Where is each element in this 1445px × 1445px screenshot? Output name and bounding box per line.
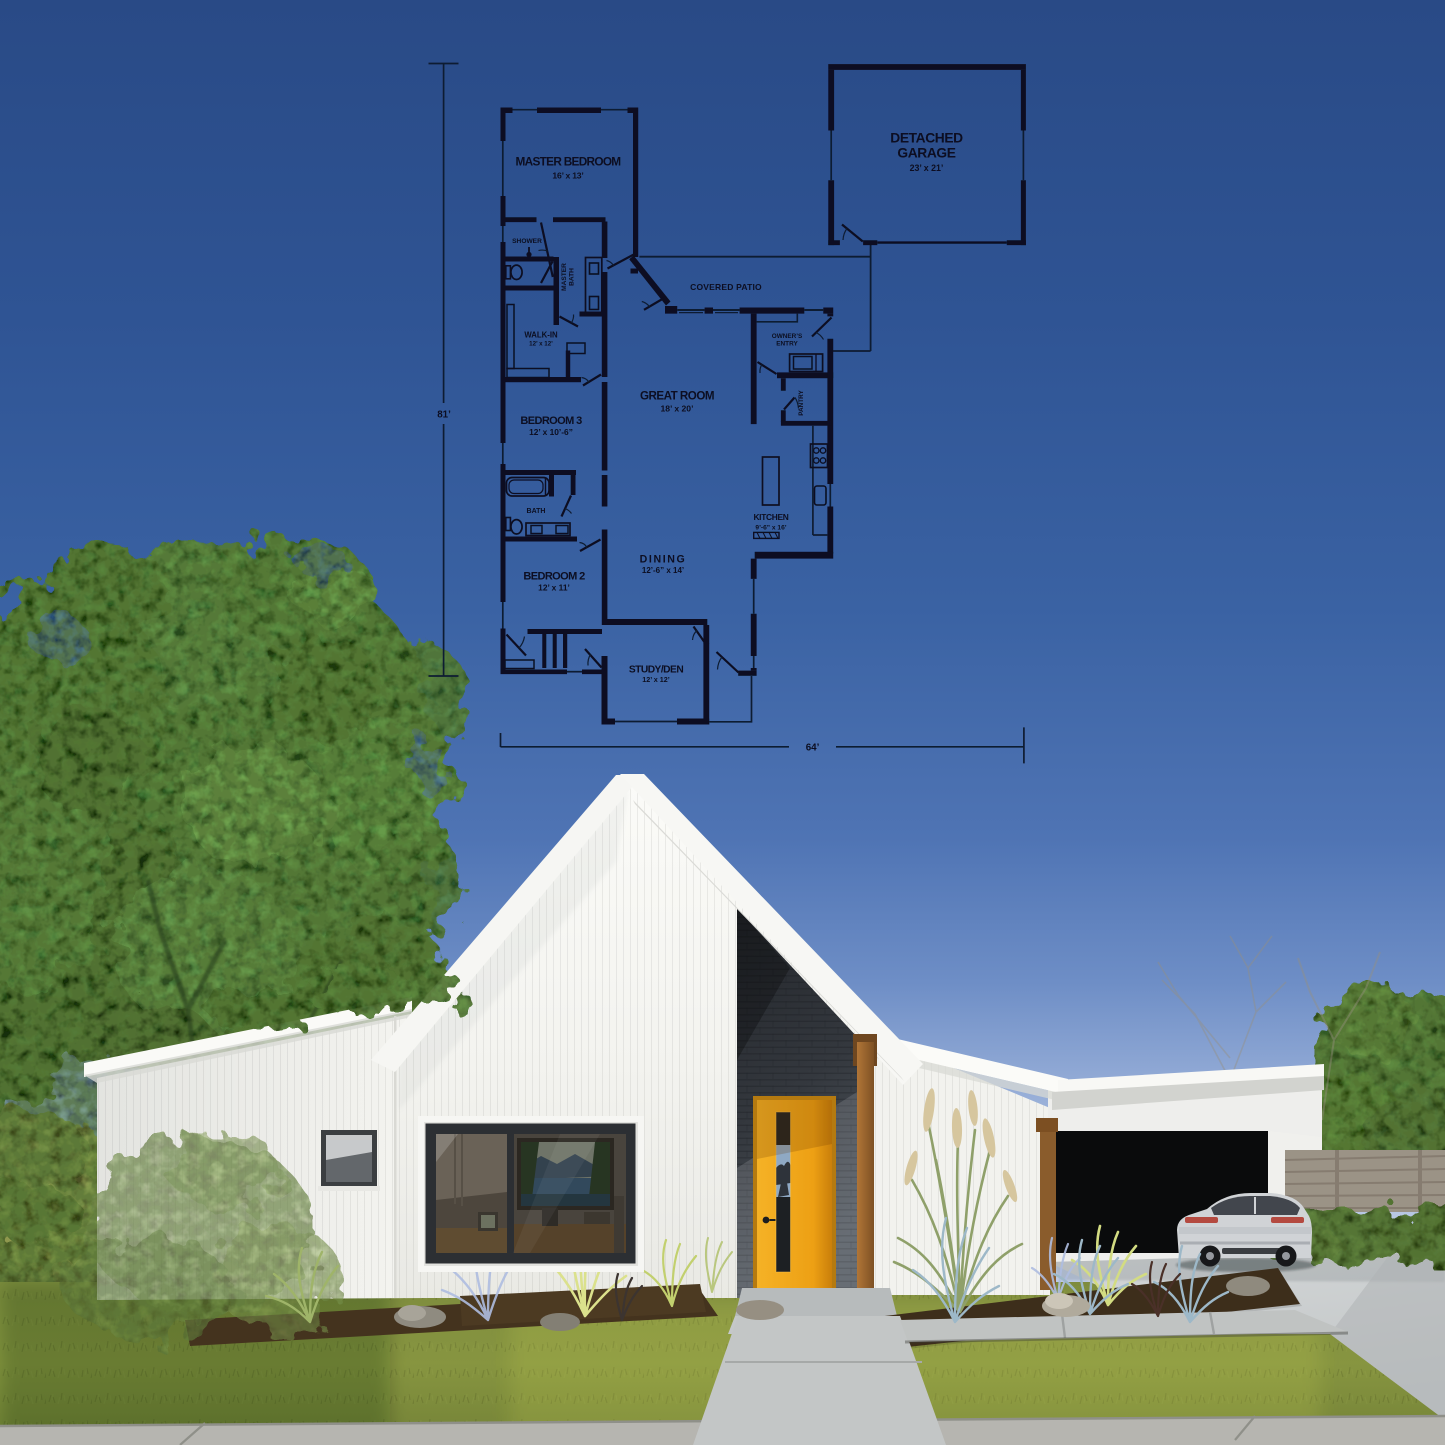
svg-text:DETACHED: DETACHED xyxy=(890,131,963,146)
svg-text:64’: 64’ xyxy=(806,743,820,754)
svg-text:18’ x 20’: 18’ x 20’ xyxy=(661,404,694,414)
svg-text:12’-6” x 14’: 12’-6” x 14’ xyxy=(642,566,684,575)
svg-text:COVERED PATIO: COVERED PATIO xyxy=(690,282,762,292)
svg-text:WALK-IN: WALK-IN xyxy=(524,331,558,340)
svg-text:BATH: BATH xyxy=(569,268,576,286)
svg-text:SHOWER: SHOWER xyxy=(512,238,542,245)
svg-text:KITCHEN: KITCHEN xyxy=(753,512,788,522)
svg-text:12’ x 10’-6”: 12’ x 10’-6” xyxy=(529,427,573,437)
svg-text:PANTRY: PANTRY xyxy=(798,389,805,415)
svg-text:16’ x 13’: 16’ x 13’ xyxy=(552,171,583,181)
svg-text:MASTER BEDROOM: MASTER BEDROOM xyxy=(516,155,622,169)
svg-text:MASTER: MASTER xyxy=(561,263,568,291)
svg-text:12’ x 12’: 12’ x 12’ xyxy=(529,341,553,348)
svg-text:81’: 81’ xyxy=(437,410,451,421)
svg-text:OWNER’S: OWNER’S xyxy=(772,333,803,340)
svg-text:BEDROOM 3: BEDROOM 3 xyxy=(520,415,582,427)
svg-text:BEDROOM 2: BEDROOM 2 xyxy=(523,571,585,583)
svg-text:DINING: DINING xyxy=(640,554,687,566)
svg-text:GARAGE: GARAGE xyxy=(897,146,955,161)
svg-text:ENTRY: ENTRY xyxy=(776,341,798,348)
svg-text:12’ x 11’: 12’ x 11’ xyxy=(538,583,570,593)
svg-text:12’ x 12’: 12’ x 12’ xyxy=(642,675,670,684)
svg-text:GREAT ROOM: GREAT ROOM xyxy=(640,390,714,403)
svg-text:9’-6” x 16’: 9’-6” x 16’ xyxy=(755,525,786,532)
svg-text:STUDY/DEN: STUDY/DEN xyxy=(629,665,684,676)
svg-text:23’ x 21’: 23’ x 21’ xyxy=(910,163,944,173)
svg-text:BATH: BATH xyxy=(527,508,546,515)
